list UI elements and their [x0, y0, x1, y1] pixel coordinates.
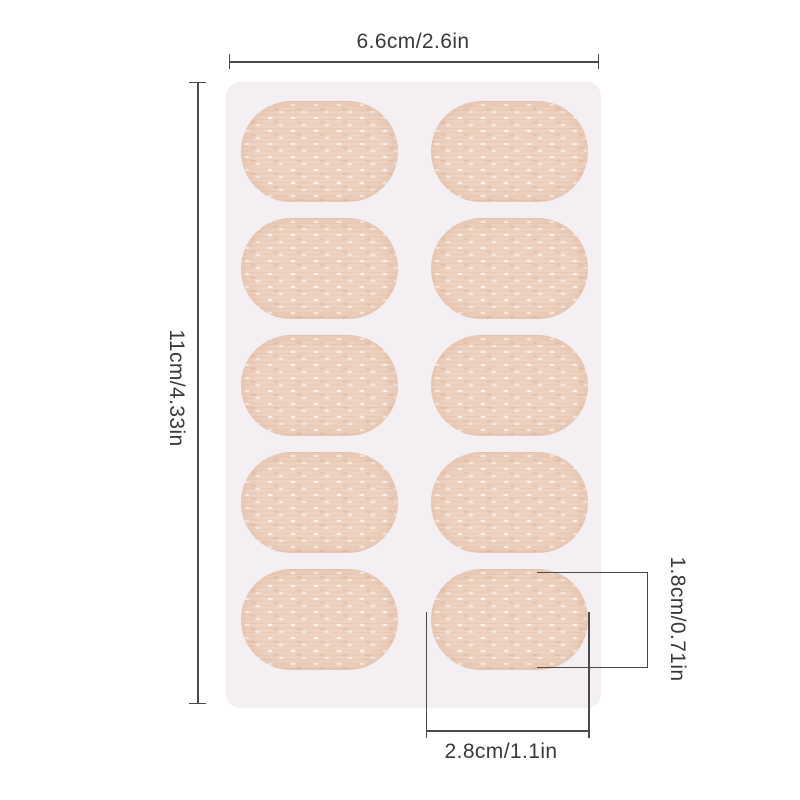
patch [431, 452, 588, 553]
patch-width-line-right [588, 612, 590, 738]
sheet-height-label: 11cm/4.33in [164, 329, 188, 446]
patch [431, 101, 588, 202]
patch-height-tick-bottom [537, 667, 648, 669]
sheet-width-line [229, 61, 599, 63]
patch [241, 569, 398, 670]
patch-sheet [226, 82, 601, 708]
patch [431, 569, 588, 670]
patch-height-label: 1.8cm/0.71in [665, 556, 689, 681]
patch-width-line-base [426, 730, 590, 732]
product-photo: 6.6cm/2.6in 11cm/4.33in 1.8cm/0.71in 2.8… [0, 0, 800, 800]
sheet-height-tick-bottom [189, 703, 206, 705]
patch [241, 218, 398, 319]
patch-width-label: 2.8cm/1.1in [445, 740, 558, 764]
patch-height-tick-top [537, 572, 648, 574]
patch [241, 452, 398, 553]
sheet-width-label: 6.6cm/2.6in [357, 30, 470, 54]
patch-height-line [647, 572, 649, 668]
patch [241, 101, 398, 202]
sheet-height-tick-top [189, 82, 206, 84]
sheet-width-tick-left [229, 54, 231, 69]
patch [431, 335, 588, 436]
patch [241, 335, 398, 436]
patch-grid [241, 101, 588, 670]
patch-width-line-left [426, 612, 428, 738]
patch [431, 218, 588, 319]
sheet-height-line [197, 82, 199, 704]
sheet-width-tick-right [598, 54, 600, 69]
